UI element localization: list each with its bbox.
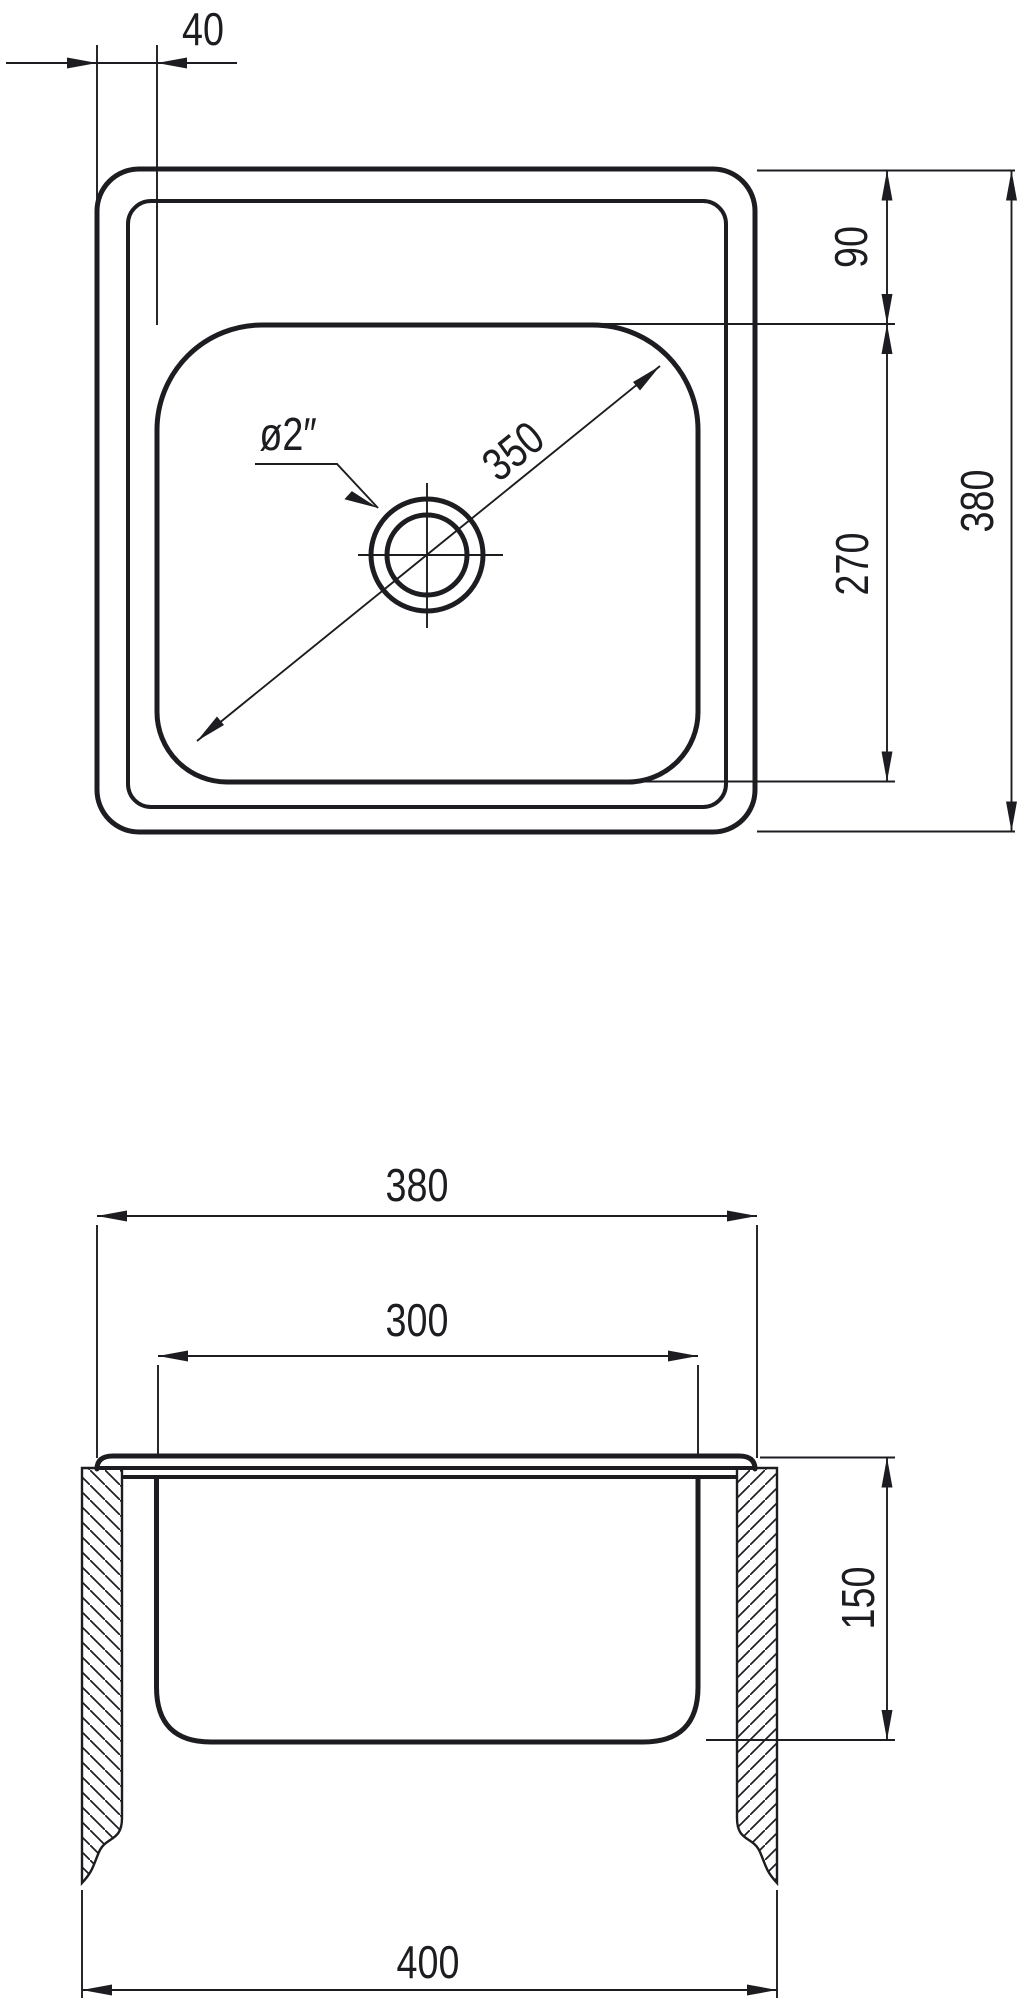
plan-view: 40 90 270 380 350: [6, 3, 1017, 832]
dim-label-stand-width: 400: [397, 1936, 460, 1987]
dimension-rim-offset: 40: [6, 3, 237, 325]
dim-label-basin-depth: 150: [832, 1567, 883, 1630]
dim-label-deck-top: 90: [825, 226, 876, 268]
section-view: 380 300: [82, 1159, 895, 1998]
dim-label-rim-offset: 40: [182, 3, 224, 54]
dim-label-basin-diagonal: 350: [472, 411, 553, 491]
dim-label-basin-plan-depth: 270: [826, 533, 877, 596]
drain-callout: ø2″: [255, 408, 379, 508]
section-basin-outline: [157, 1479, 699, 1742]
counter-wall-right: [737, 1468, 777, 1883]
counter-wall-left: [82, 1468, 122, 1883]
dim-label-section-overall: 380: [386, 1159, 449, 1210]
drawing-svg: 40 90 270 380 350: [0, 0, 1023, 2000]
dimension-basin-width: 300: [158, 1294, 698, 1456]
dim-label-drain-size: ø2″: [259, 408, 316, 459]
dimension-plan-overall: 380: [951, 171, 1017, 832]
dim-label-plan-overall: 380: [951, 470, 1002, 533]
dimension-basin-depth: 150: [706, 1458, 895, 1741]
technical-drawing-canvas: 40 90 270 380 350: [0, 0, 1023, 2000]
dim-label-basin-width: 300: [386, 1294, 449, 1345]
dimension-deck-and-basin: 90 270: [825, 171, 892, 782]
plan-drain: [358, 483, 503, 628]
dimension-stand-width: 400: [82, 1890, 777, 1998]
section-flange: [97, 1456, 755, 1477]
